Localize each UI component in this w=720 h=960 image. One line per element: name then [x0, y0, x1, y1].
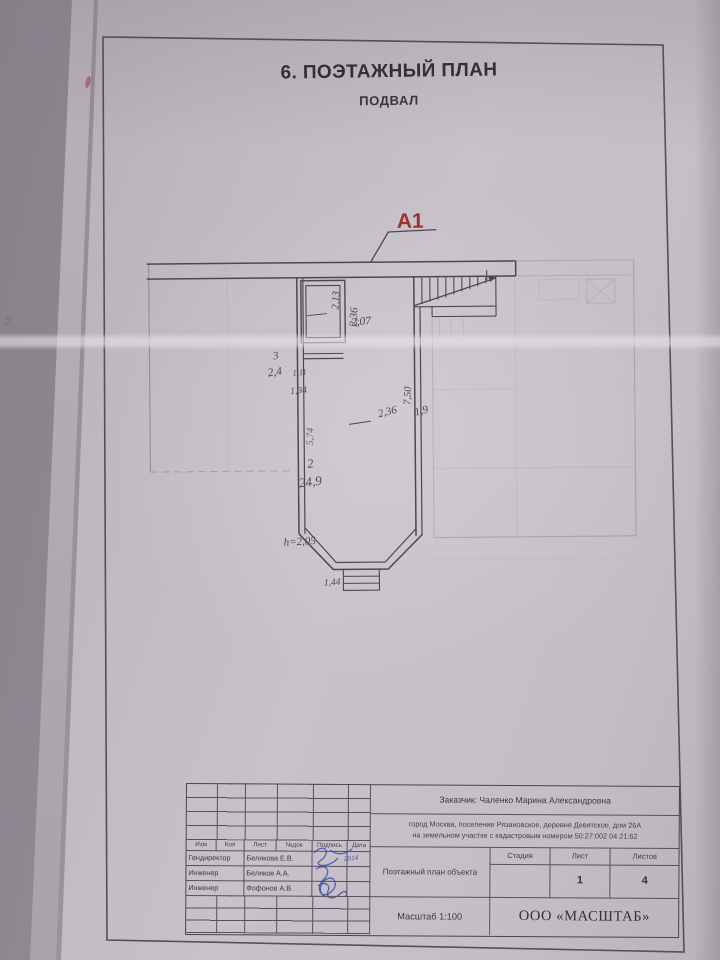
staff-row: Инженер Беляков А.А.: [186, 866, 370, 882]
address-line-2: на земельном участке с кадастровым номер…: [412, 830, 637, 842]
section-marker: А1: [370, 210, 436, 263]
staff-row: Гендиректор Белякова Е.В.: [186, 851, 370, 867]
dim-niche-width: 1,11: [292, 367, 307, 378]
faint-right-wing: [432, 260, 637, 560]
revision-table: Изм Кол Лист №док Подпись Дата Гендирект…: [186, 784, 371, 934]
scan-light-band: [0, 333, 720, 350]
stage-value: [490, 865, 550, 898]
red-smudge: [84, 76, 92, 89]
stage-sheet-block: Стадия Лист Листов 1 4: [490, 848, 679, 899]
sheet-label: Лист: [551, 848, 611, 865]
col-ndok: №док: [277, 841, 313, 852]
dim-top-width: 2,07: [350, 315, 372, 329]
staff-name: Белякова Е.В.: [244, 851, 312, 866]
col-data: Дата: [348, 841, 371, 852]
company-cell: ООО «МАСШТАБ»: [490, 898, 679, 936]
room2-number: 2: [306, 456, 314, 471]
doc-title-cell: Поэтажный план объекта: [370, 847, 490, 898]
address-cell: город Москва, поселение Рязановское, дер…: [371, 814, 680, 849]
staff-row: Инженер Фофонов А.В.: [186, 881, 370, 897]
sheets-label: Листов: [611, 849, 680, 866]
col-podpis: Подпись: [313, 841, 348, 852]
revision-grid-empty-top: [187, 784, 371, 841]
basement-walls: [147, 261, 519, 592]
dim-stair-width: 1,9: [413, 403, 430, 418]
staff-role: Инженер: [186, 881, 244, 896]
staff-signature-cell: [312, 852, 347, 867]
col-izm: Изм: [187, 840, 217, 851]
stage-label: Стадия: [491, 848, 551, 865]
dim-niche-outer-width: 1,34: [290, 386, 308, 397]
staff-signature-cell: [312, 867, 347, 882]
revision-grid-empty-bottom: [186, 896, 370, 934]
staff-date-cell: [347, 852, 370, 867]
staff-rows: Гендиректор Белякова Е.В. Инженер Беляко…: [186, 851, 370, 897]
stage-value-row: 1 4: [490, 865, 679, 899]
client-cell: Заказчик: Чаленко Марина Александровна: [371, 785, 680, 816]
dim-stair-run: 2,36: [377, 404, 399, 421]
staff-name: Беляков А.А.: [244, 866, 312, 881]
dim-left-wall: 5,74: [305, 428, 316, 446]
col-list: Лист: [245, 840, 277, 851]
staff-role: Инженер: [186, 866, 244, 881]
dim-bay-front: 1,44: [324, 578, 341, 589]
room3-area: 2,4: [267, 365, 283, 379]
stage-header-row: Стадия Лист Листов: [491, 848, 680, 866]
staff-role: Гендиректор: [186, 851, 244, 866]
dim-right-wall: 7,50: [403, 386, 414, 405]
staff-signature-cell: [312, 882, 347, 897]
title-block: Изм Кол Лист №док Подпись Дата Гендирект…: [185, 783, 680, 938]
staff-date-cell: [347, 882, 370, 897]
sheet-value: 1: [550, 865, 610, 898]
staff-name: Фофонов А.В.: [244, 881, 312, 896]
sheets-value: 4: [610, 866, 679, 899]
section-marker-label: А1: [397, 210, 424, 233]
ceiling-height-note: h=2,05: [283, 535, 316, 549]
dim-room3-height: 2,13: [331, 291, 343, 310]
room3-number: 3: [271, 350, 280, 363]
col-kol: Кол: [217, 840, 245, 851]
scale-cell: Масштаб 1:100: [370, 897, 490, 935]
room2-area: 24,9: [298, 473, 323, 491]
staff-date-cell: [347, 867, 370, 882]
page-edge-mark: №: [2, 314, 15, 327]
